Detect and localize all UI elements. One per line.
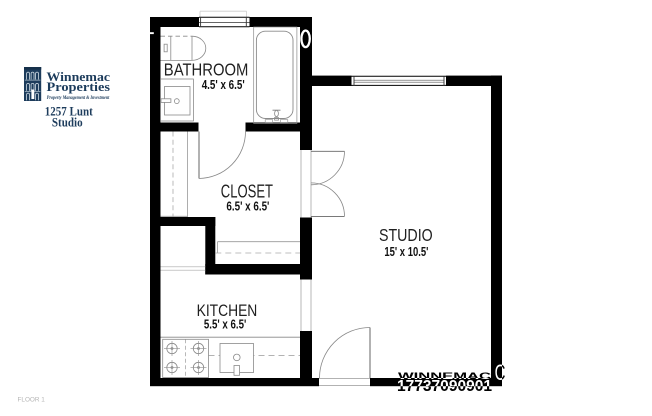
svg-text:STUDIO: STUDIO xyxy=(379,225,433,245)
svg-text:FLOOR 1: FLOOR 1 xyxy=(18,397,46,404)
svg-text:17737090901: 17737090901 xyxy=(397,378,492,395)
svg-text:Property Management & Investme: Property Management & Investment xyxy=(47,96,110,101)
svg-text:Properties: Properties xyxy=(47,80,111,94)
svg-text:5.5' x 6.5': 5.5' x 6.5' xyxy=(204,318,246,332)
svg-text:4.5' x 6.5': 4.5' x 6.5' xyxy=(202,78,245,92)
svg-text:BATHROOM: BATHROOM xyxy=(164,60,249,80)
svg-text:15' x 10.5': 15' x 10.5' xyxy=(384,245,428,259)
svg-text:C: C xyxy=(495,360,506,385)
svg-text:6.5' x 6.5': 6.5' x 6.5' xyxy=(226,200,269,214)
svg-text:Studio: Studio xyxy=(52,116,83,130)
